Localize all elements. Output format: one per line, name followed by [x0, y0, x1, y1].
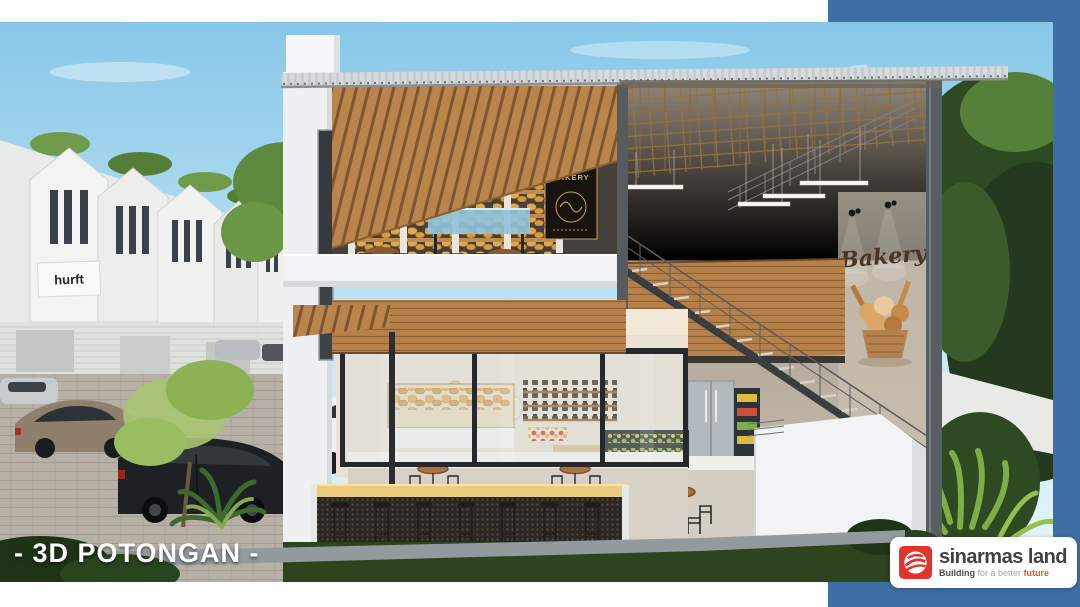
- brand-tagline: Building for a better future: [939, 569, 1067, 578]
- logo-text: sinarmas land Building for a better futu…: [939, 547, 1067, 578]
- ground-floor-shop: [293, 300, 689, 574]
- render-image: hurft: [0, 22, 1053, 582]
- tagline-word-future: future: [1024, 568, 1050, 578]
- brand-name: sinarmas land: [939, 547, 1067, 567]
- logo-card: sinarmas land Building for a better futu…: [890, 537, 1077, 588]
- floor-slab: [283, 255, 625, 287]
- house-sign-text: hurft: [54, 271, 85, 287]
- tagline-word-building: Building: [939, 568, 975, 578]
- silver-car: [0, 378, 58, 404]
- slide: hurft: [0, 0, 1080, 607]
- second-floor-cafe: BAKERY: [332, 86, 620, 280]
- tagline-word-middle: for a better: [978, 568, 1022, 578]
- bakery-building: BAKERY: [281, 35, 1008, 575]
- house-sign: hurft: [37, 261, 100, 297]
- sinarmas-logo-icon: [899, 546, 932, 579]
- slide-title: - 3D POTONGAN -: [14, 538, 260, 569]
